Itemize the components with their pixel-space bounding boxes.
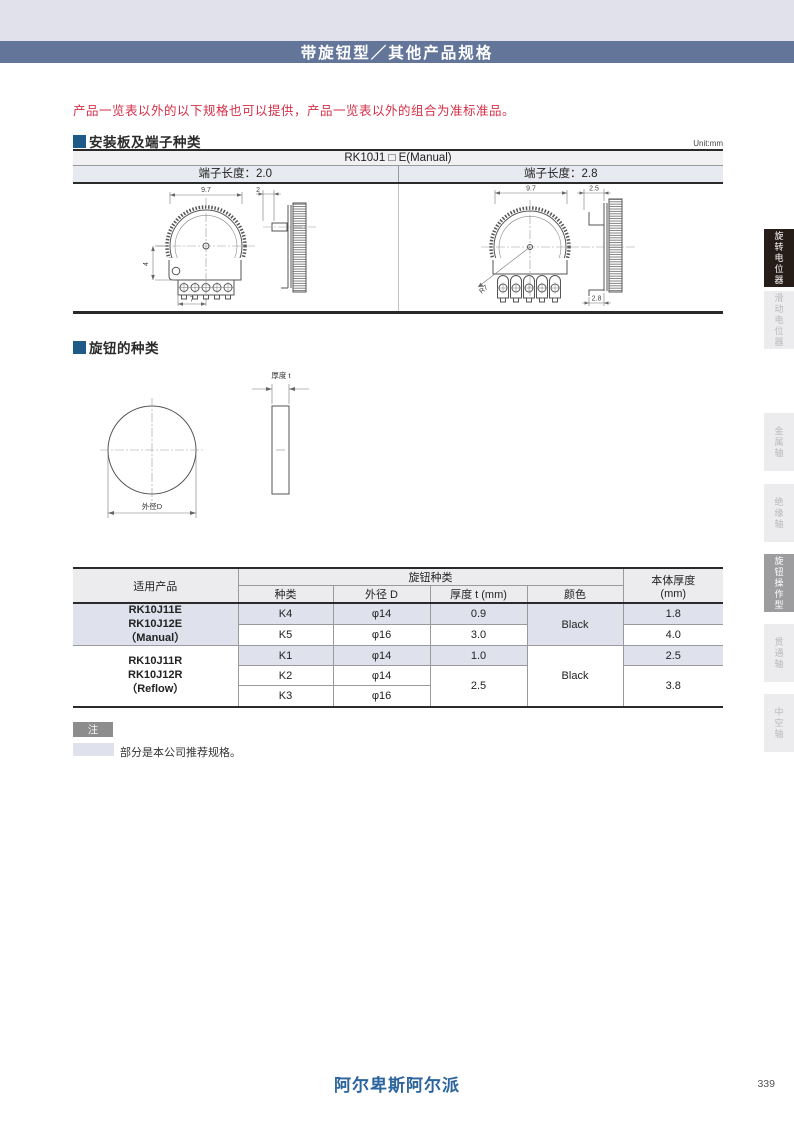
sidebar-tab-through-shaft[interactable]: 贯通轴	[764, 624, 794, 682]
col-header-color: 颜色	[527, 586, 623, 604]
col-header-kind: 种类	[238, 586, 333, 604]
sidebar-tab-metal-shaft[interactable]: 金属轴	[764, 413, 794, 471]
section-marker-icon	[73, 135, 86, 148]
page-header: 带旋钮型／其他产品规格	[0, 41, 794, 63]
page-number: 339	[757, 1078, 775, 1090]
product-variant: （Reflow）	[73, 683, 238, 697]
dim-2-left: 2	[256, 187, 260, 194]
sidebar-tab-rotary-potentiometer[interactable]: 旋转电位器	[764, 229, 794, 287]
product-name: RK10J11E	[73, 604, 238, 618]
product-name: RK10J11R	[73, 655, 238, 669]
catalog-page: 带旋钮型／其他产品规格 产品一览表以外的以下规格也可以提供，产品一览表以外的组合…	[0, 0, 794, 1123]
sidebar-tab-slide-potentiometer[interactable]: 滑动电位器	[764, 291, 794, 349]
product-name: RK10J12R	[73, 669, 238, 683]
dim-7-left: 7	[190, 297, 194, 304]
note-text: 部分是本公司推荐规格。	[120, 744, 241, 760]
unit-label: Unit:mm	[693, 139, 723, 148]
mounting-table-title: RK10J1 □ E(Manual)	[73, 149, 723, 166]
knob-spec-table: 适用产品 旋钮种类 本体厚度 (mm) 种类 外径 D 厚度 t (mm) 颜色…	[73, 567, 723, 708]
product-variant: （Manual）	[73, 632, 238, 646]
col-header-product: 适用产品	[73, 568, 238, 603]
section-marker-icon	[73, 341, 86, 354]
col-header-thickness: 厚度 t (mm)	[430, 586, 527, 604]
label-thickness: 厚度 t	[271, 370, 291, 380]
product-group-manual: RK10J11E RK10J12E （Manual）	[73, 603, 238, 646]
cell-dia: φ14	[333, 603, 430, 624]
brand-logo-text: 阿尔卑斯阿尔派	[0, 1071, 794, 1096]
cell-dia: φ16	[333, 624, 430, 645]
cell-color-group2: Black	[527, 646, 623, 707]
cell-kind: K5	[238, 624, 333, 645]
cell-color-group1: Black	[527, 603, 623, 646]
dim-9_7-left: 9.7	[201, 187, 211, 194]
cell-kind: K1	[238, 646, 333, 666]
cell-thickness: 0.9	[430, 603, 527, 624]
cell-body-thickness: 1.8	[623, 603, 723, 624]
cell-kind: K4	[238, 603, 333, 624]
terminal-length-left-header: 端子长度：2.0	[73, 166, 399, 182]
dim-9_7-right: 9.7	[526, 186, 536, 193]
product-group-reflow: RK10J11R RK10J12R （Reflow）	[73, 646, 238, 707]
cell-body-thickness-merged: 3.8	[623, 666, 723, 707]
mounting-table: RK10J1 □ E(Manual) 端子长度：2.0 端子长度：2.8	[73, 149, 723, 314]
cell-dia: φ14	[333, 666, 430, 686]
label-outer-diameter: 外径D	[142, 501, 163, 511]
section-heading-knob-text: 旋钮的种类	[89, 337, 159, 357]
cell-thickness-merged: 2.5	[430, 666, 527, 707]
cell-dia: φ16	[333, 686, 430, 707]
drawing-terminal-2_8: R7 9.7 2.5 2.8	[399, 184, 723, 311]
terminals-front-reflow	[498, 276, 561, 303]
cell-dia: φ14	[333, 646, 430, 666]
cell-thickness: 3.0	[430, 624, 527, 645]
knob-dimension-drawing: 外径D 厚度 t	[90, 360, 330, 545]
highlight-swatch	[73, 743, 114, 756]
cell-body-thickness: 2.5	[623, 646, 723, 666]
page-title: 带旋钮型／其他产品规格	[301, 41, 494, 63]
section-heading-mounting: 安装板及端子种类	[73, 131, 201, 151]
cell-body-thickness: 4.0	[623, 624, 723, 645]
col-header-knob-group: 旋钮种类	[238, 568, 623, 586]
col-header-body-thickness-line2: (mm)	[624, 588, 724, 600]
sidebar-tab-hollow-shaft[interactable]: 中空轴	[764, 694, 794, 752]
terminal-length-right-header: 端子长度：2.8	[399, 166, 724, 182]
col-header-body-thickness-line1: 本体厚度	[624, 572, 724, 588]
col-header-dia: 外径 D	[333, 586, 430, 604]
dim-2_8-right: 2.8	[592, 296, 602, 303]
top-strip	[0, 0, 794, 41]
cell-kind: K2	[238, 666, 333, 686]
sidebar-tab-knob-operated[interactable]: 旋钮操作型	[764, 554, 794, 612]
dim-2_5-right: 2.5	[589, 186, 599, 193]
mounting-table-subheader: 端子长度：2.0 端子长度：2.8	[73, 166, 723, 184]
section-heading-knob: 旋钮的种类	[73, 337, 159, 357]
cell-thickness: 1.0	[430, 646, 527, 666]
cell-kind: K3	[238, 686, 333, 707]
dim-4-left: 4	[143, 262, 150, 266]
note-badge: 注	[73, 722, 113, 737]
col-header-body-thickness: 本体厚度 (mm)	[623, 568, 723, 603]
mounting-drawings: 9.7 4 7 2	[73, 184, 723, 314]
drawing-terminal-2_0: 9.7 4 7 2	[73, 184, 398, 311]
sidebar-tab-insulated-shaft[interactable]: 绝缘轴	[764, 484, 794, 542]
product-name: RK10J12E	[73, 618, 238, 632]
section-heading-mounting-text: 安装板及端子种类	[89, 131, 201, 151]
availability-notice: 产品一览表以外的以下规格也可以提供，产品一览表以外的组合为准标准品。	[73, 100, 515, 119]
